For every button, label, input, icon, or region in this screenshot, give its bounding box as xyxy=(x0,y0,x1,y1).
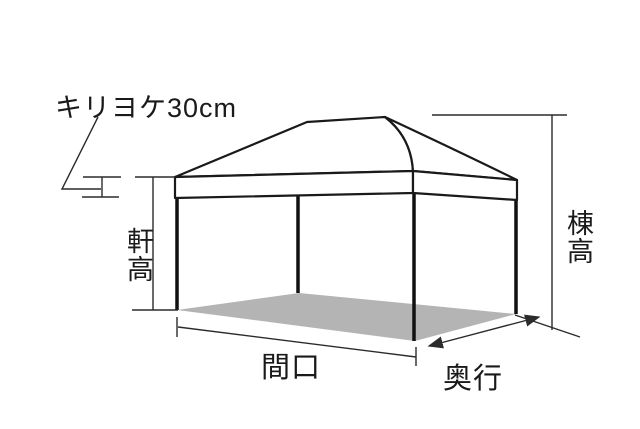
depth-label: 奥行 xyxy=(443,355,503,397)
roof-front-face xyxy=(175,117,413,177)
tent-dimension-diagram: キリヨケ30cm 軒高 棟高 間口 奥行 xyxy=(0,0,640,429)
ridge-height-label: 棟高 xyxy=(559,209,598,265)
ground-reference-line xyxy=(515,315,580,337)
eave-height-label: 軒高 xyxy=(119,227,158,283)
valance-note-label: キリヨケ30cm xyxy=(55,86,237,125)
valance-leader-line xyxy=(62,117,101,189)
frontage-label: 間口 xyxy=(261,344,321,386)
valance-front-band xyxy=(175,171,413,198)
